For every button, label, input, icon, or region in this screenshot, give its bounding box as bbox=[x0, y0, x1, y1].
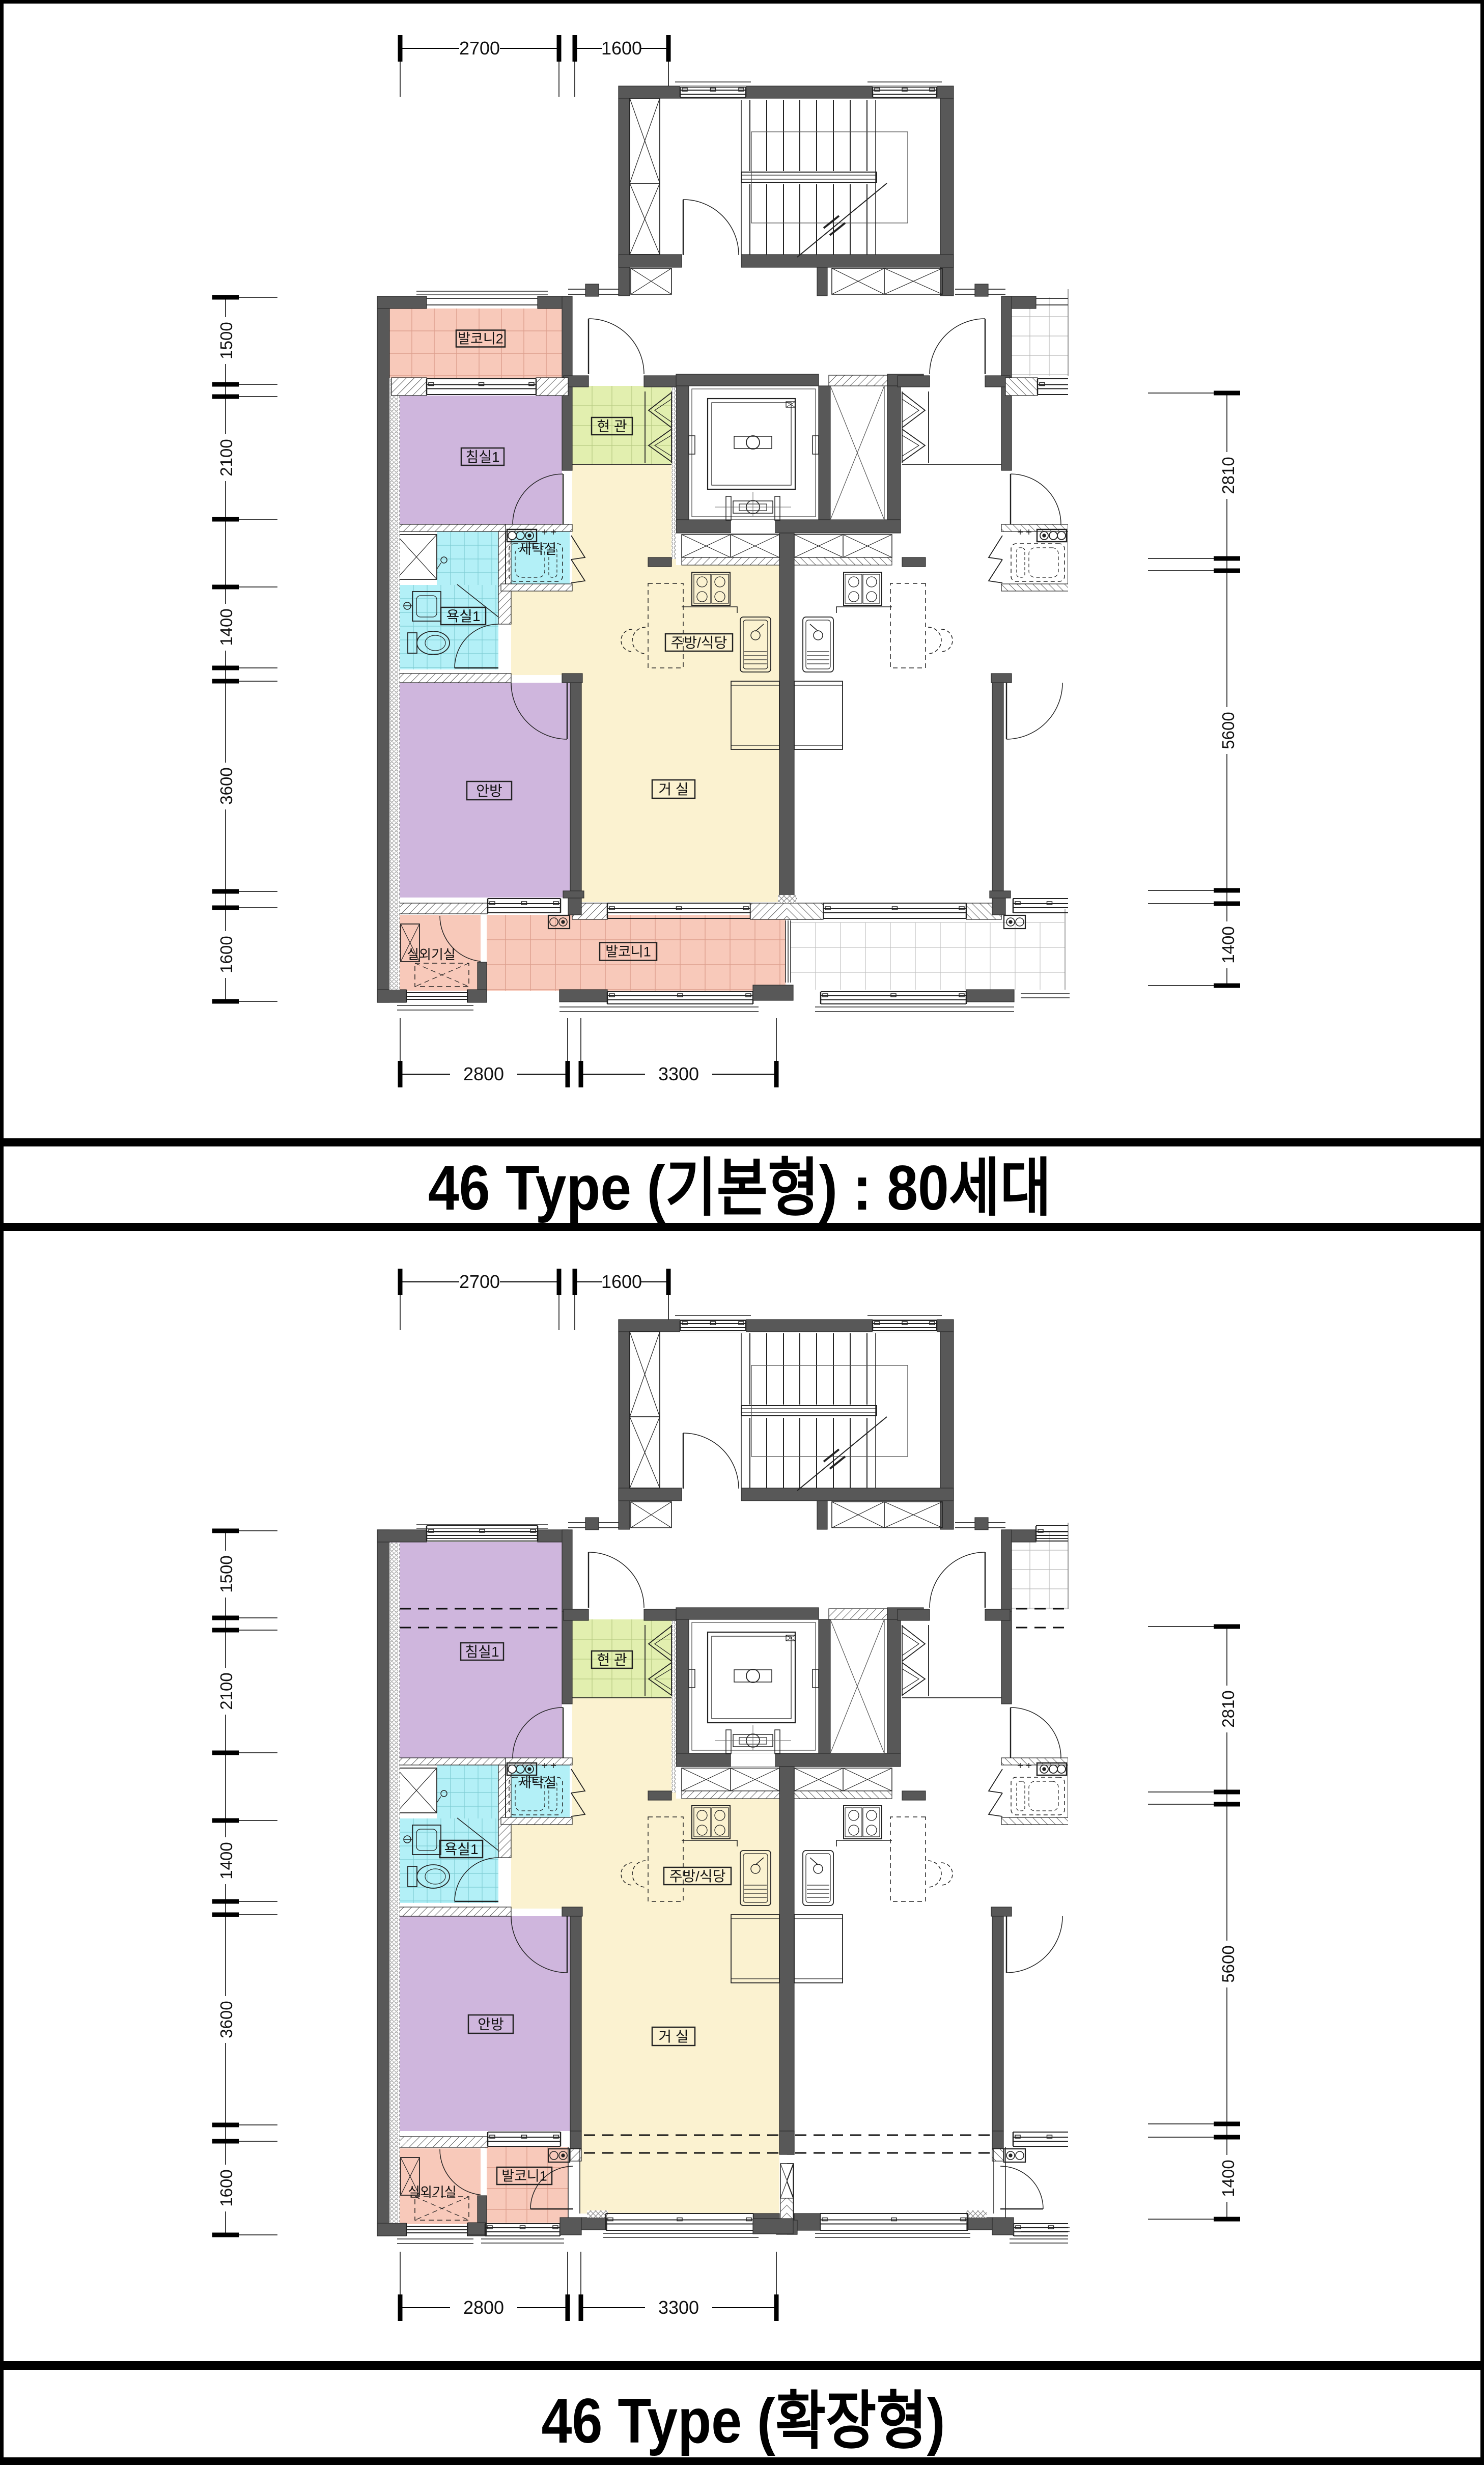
svg-text:발코니1: 발코니1 bbox=[605, 944, 651, 960]
svg-text:거 실: 거 실 bbox=[658, 2029, 688, 2044]
svg-text:안방: 안방 bbox=[476, 783, 502, 799]
svg-text:실외기실: 실외기실 bbox=[407, 947, 456, 962]
svg-text:발코니2: 발코니2 bbox=[458, 331, 503, 347]
svg-text:46 Type (확장형): 46 Type (확장형) bbox=[542, 2386, 945, 2456]
svg-text:46 Type (기본형) : 80세대: 46 Type (기본형) : 80세대 bbox=[428, 1153, 1051, 1223]
svg-text:실외기실: 실외기실 bbox=[408, 2184, 457, 2200]
svg-text:안방: 안방 bbox=[478, 2016, 504, 2032]
svg-text:세탁실: 세탁실 bbox=[519, 542, 557, 557]
svg-text:주방/식당: 주방/식당 bbox=[671, 635, 727, 651]
svg-text:현 관: 현 관 bbox=[597, 418, 627, 434]
svg-text:현 관: 현 관 bbox=[597, 1652, 627, 1668]
svg-text:거 실: 거 실 bbox=[658, 781, 688, 797]
svg-text:욕실1: 욕실1 bbox=[446, 608, 480, 624]
svg-text:발코니1: 발코니1 bbox=[501, 2169, 547, 2184]
svg-text:침실1: 침실1 bbox=[465, 1644, 499, 1660]
svg-text:세탁실: 세탁실 bbox=[519, 1775, 557, 1790]
svg-text:주방/식당: 주방/식당 bbox=[669, 1868, 726, 1884]
svg-text:욕실1: 욕실1 bbox=[444, 1841, 478, 1857]
svg-text:침실1: 침실1 bbox=[465, 449, 499, 465]
